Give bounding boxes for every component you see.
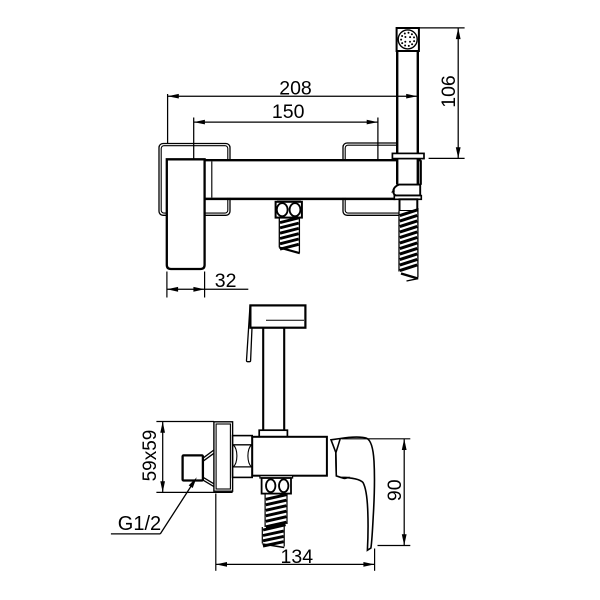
svg-text:208: 208 <box>279 78 312 100</box>
svg-text:134: 134 <box>281 546 314 568</box>
svg-text:90: 90 <box>384 479 406 501</box>
svg-text:150: 150 <box>272 101 305 123</box>
svg-text:59x59: 59x59 <box>140 430 161 482</box>
svg-text:G1/2: G1/2 <box>118 513 161 535</box>
svg-text:32: 32 <box>215 270 237 292</box>
svg-text:106: 106 <box>438 75 460 108</box>
